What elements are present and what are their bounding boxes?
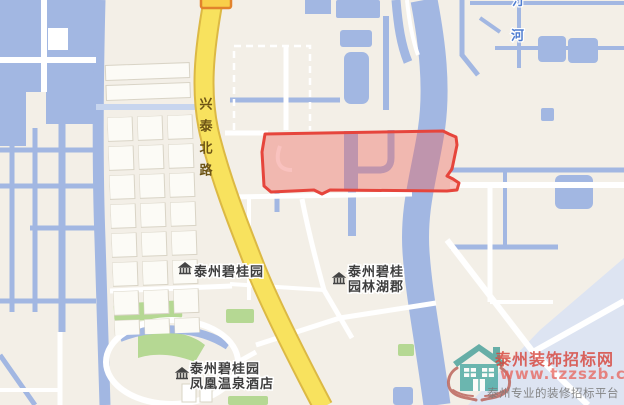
poi-label-hotel-line2[interactable]: 凤凰温泉酒店 (190, 376, 274, 392)
road-bridge-marker (201, 0, 231, 8)
poi-label-hotel-line1[interactable]: 泰州碧桂园 (189, 361, 260, 377)
highlighted-region[interactable] (262, 131, 459, 194)
road-name-label: 兴泰北路 (197, 96, 214, 185)
poi-label-estate2-line1[interactable]: 泰州碧桂 (347, 264, 404, 280)
map-viewport[interactable]: 兴泰北路 汀 河 泰州碧桂园 泰州碧桂 园林湖郡 泰州碧桂园 凤凰温泉酒店 (0, 0, 624, 405)
map-canvas[interactable]: 兴泰北路 汀 河 泰州碧桂园 泰州碧桂 园林湖郡 泰州碧桂园 凤凰温泉酒店 (0, 0, 624, 405)
poi-label-estate1[interactable]: 泰州碧桂园 (193, 264, 264, 280)
poi-label-estate2-line2[interactable]: 园林湖郡 (348, 279, 404, 295)
river-name-partial-label: 汀 (512, 0, 525, 9)
river-name-label: 河 (511, 28, 524, 44)
